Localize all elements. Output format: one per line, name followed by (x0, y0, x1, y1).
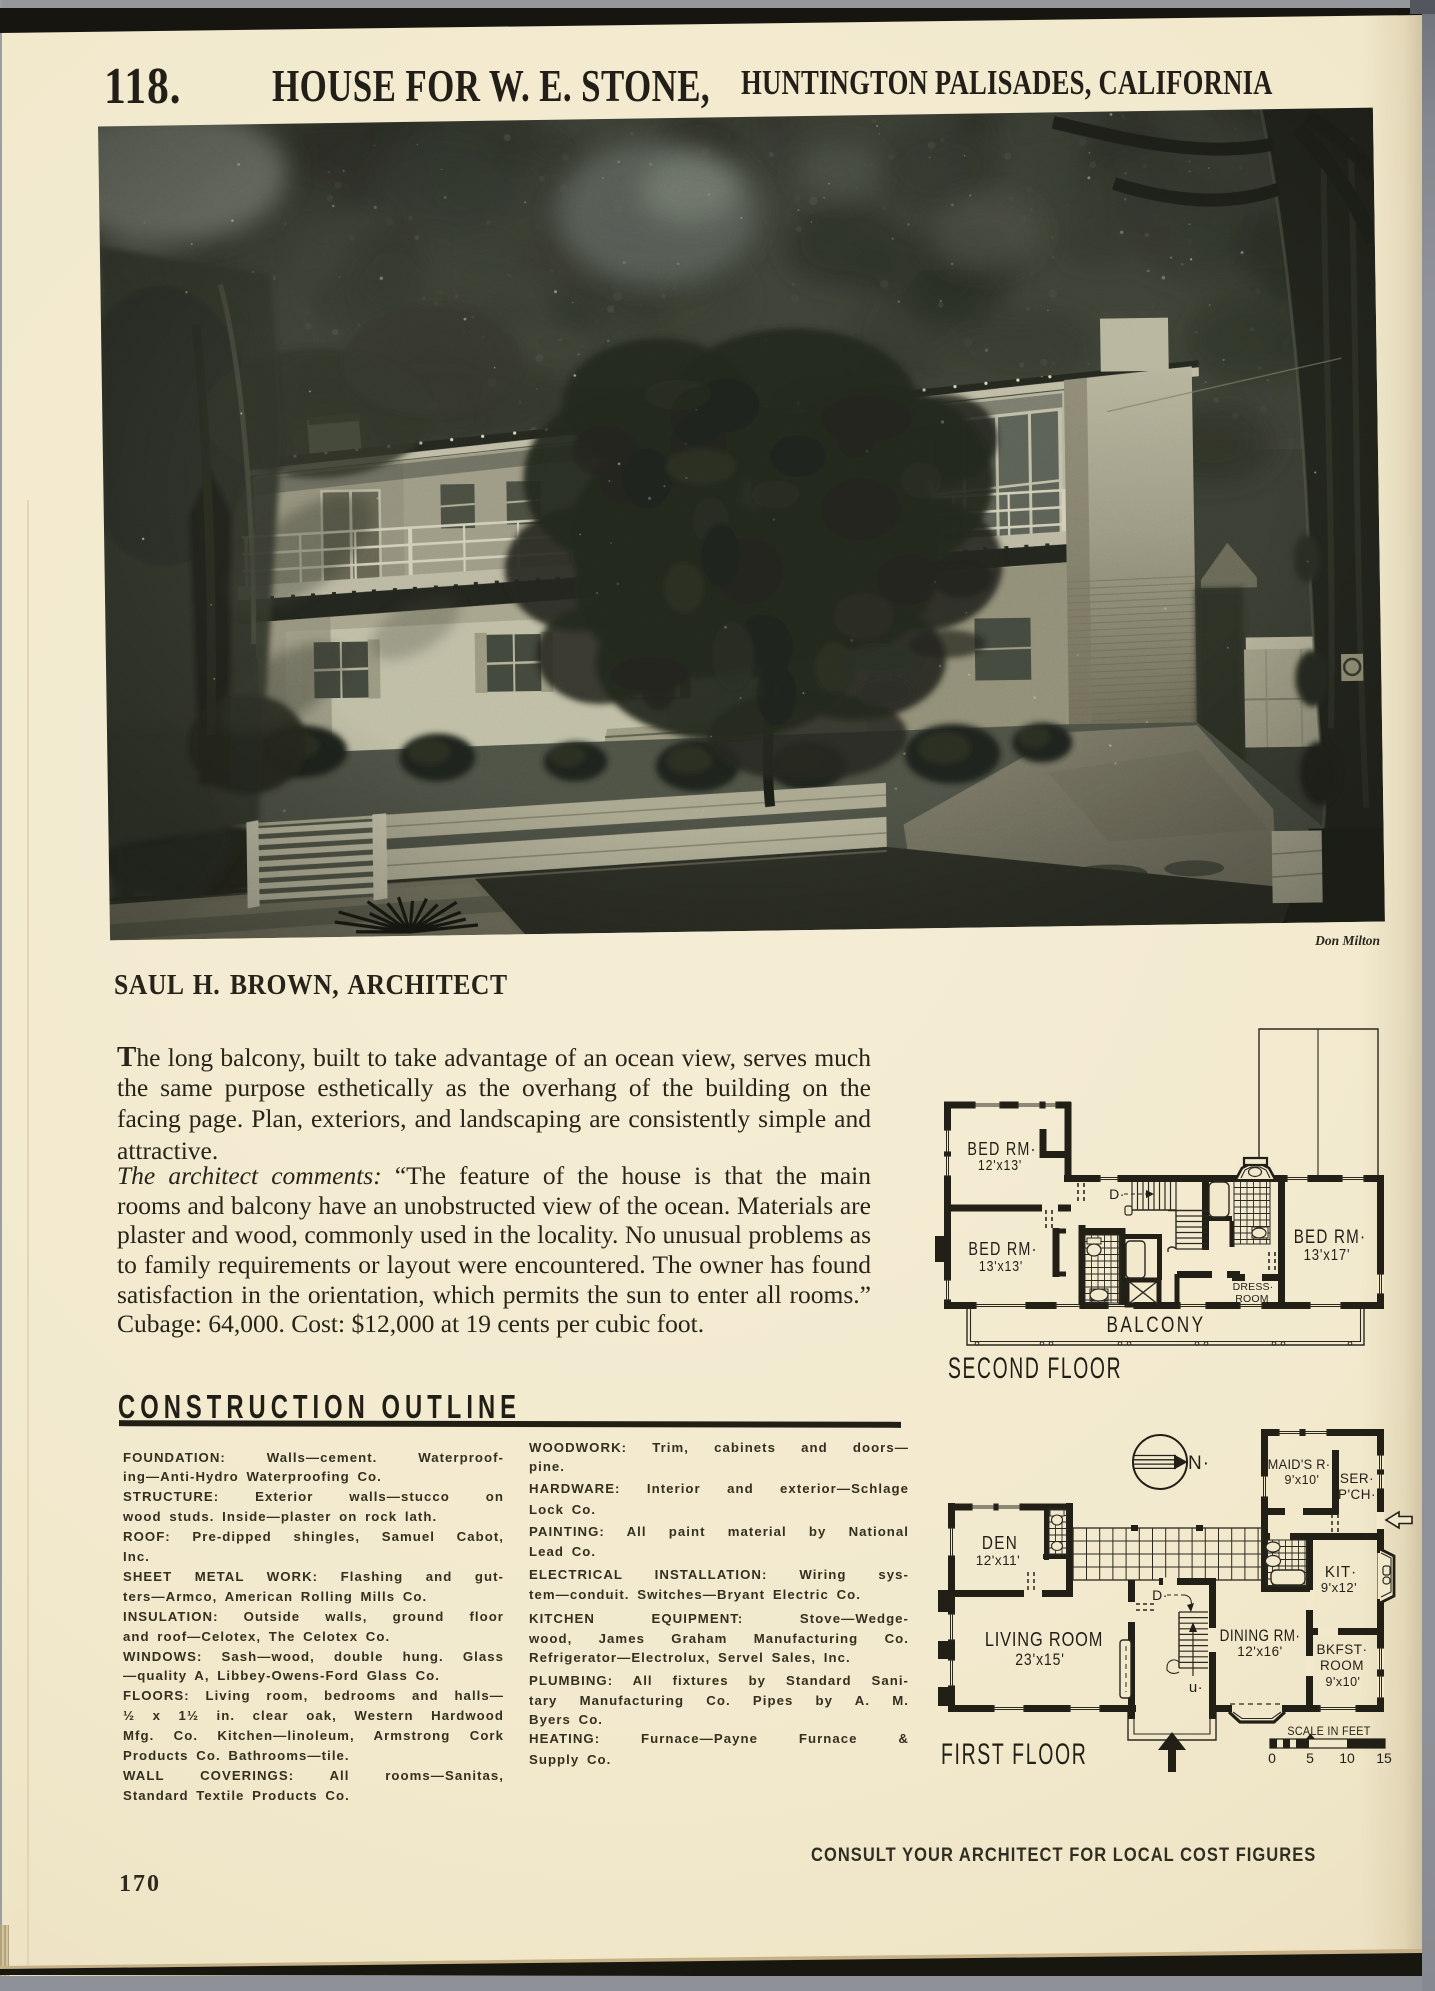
svg-text:DINING RM·: DINING RM· (1220, 1627, 1301, 1646)
svg-text:SECOND FLOOR: SECOND FLOOR (948, 1352, 1122, 1385)
svg-text:ROOM: ROOM (1235, 1293, 1268, 1305)
svg-text:23'x15': 23'x15' (1015, 1651, 1064, 1669)
svg-text:9'x10': 9'x10' (1326, 1675, 1361, 1689)
svg-text:DEN: DEN (982, 1533, 1018, 1553)
svg-text:12'x11': 12'x11' (976, 1553, 1020, 1568)
svg-text:D·: D· (1109, 1186, 1125, 1202)
svg-text:5: 5 (1306, 1750, 1314, 1766)
svg-text:10: 10 (1339, 1750, 1355, 1766)
svg-text:N·: N· (1188, 1453, 1210, 1474)
svg-text:ROOM: ROOM (1320, 1658, 1364, 1673)
svg-text:DRESS·: DRESS· (1233, 1281, 1274, 1293)
svg-text:D·: D· (1152, 1587, 1168, 1603)
svg-text:BKFST·: BKFST· (1316, 1642, 1367, 1657)
svg-text:BED RM·: BED RM· (1294, 1225, 1367, 1247)
svg-text:SCALE IN FEET: SCALE IN FEET (1287, 1726, 1370, 1739)
svg-text:SER·: SER· (1340, 1471, 1374, 1486)
svg-text:KIT·: KIT· (1325, 1564, 1357, 1581)
svg-text:0: 0 (1268, 1750, 1276, 1766)
svg-text:BED RM·: BED RM· (968, 1238, 1037, 1259)
svg-text:13'x17': 13'x17' (1304, 1247, 1351, 1264)
svg-text:9'x12': 9'x12' (1321, 1580, 1357, 1595)
svg-text:9'x10': 9'x10' (1285, 1473, 1320, 1487)
svg-text:BALCONY: BALCONY (1107, 1313, 1206, 1337)
svg-text:MAID'S R·: MAID'S R· (1268, 1457, 1331, 1472)
svg-text:15: 15 (1376, 1750, 1392, 1766)
svg-text:12'x16': 12'x16' (1237, 1644, 1282, 1659)
svg-text:LIVING ROOM: LIVING ROOM (985, 1627, 1103, 1650)
svg-text:FIRST FLOOR: FIRST FLOOR (941, 1738, 1087, 1771)
svg-text:u·: u· (1189, 1679, 1203, 1696)
svg-text:12'x13': 12'x13' (978, 1157, 1022, 1173)
svg-text:13'x13': 13'x13' (979, 1258, 1023, 1274)
svg-text:P'CH·: P'CH· (1338, 1487, 1376, 1502)
